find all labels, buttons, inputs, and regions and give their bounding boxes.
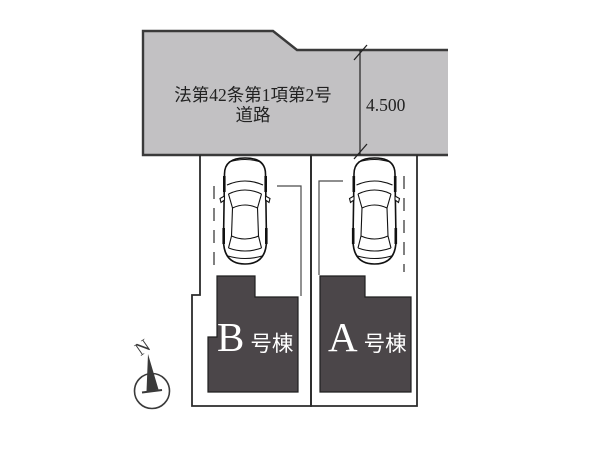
car-lot-a	[350, 158, 400, 264]
compass-crossbar	[142, 390, 162, 393]
building-b-letter: B	[217, 314, 244, 360]
compass-north-label: N	[131, 335, 155, 360]
car-lot-b	[220, 158, 270, 264]
site-plan-drawing: 法第42条第1項第2号 道路 4.500 B	[0, 0, 600, 449]
parking-corner-line-a	[319, 181, 343, 275]
parking-corner-line-b	[277, 186, 301, 296]
dimension-value: 4.500	[366, 95, 406, 115]
road-area: 法第42条第1項第2号 道路	[143, 31, 448, 155]
building-a: A 号棟	[320, 276, 411, 392]
compass: N	[131, 335, 169, 408]
compass-needle	[147, 354, 159, 392]
road-label-line1: 法第42条第1項第2号	[174, 85, 332, 105]
site-plan: 法第42条第1項第2号 道路 4.500 B	[0, 0, 600, 449]
building-b-suffix: 号棟	[250, 332, 293, 356]
road-label-line2: 道路	[236, 105, 271, 125]
building-a-suffix: 号棟	[364, 332, 407, 356]
building-b: B 号棟	[208, 276, 298, 392]
building-a-letter: A	[328, 314, 358, 360]
